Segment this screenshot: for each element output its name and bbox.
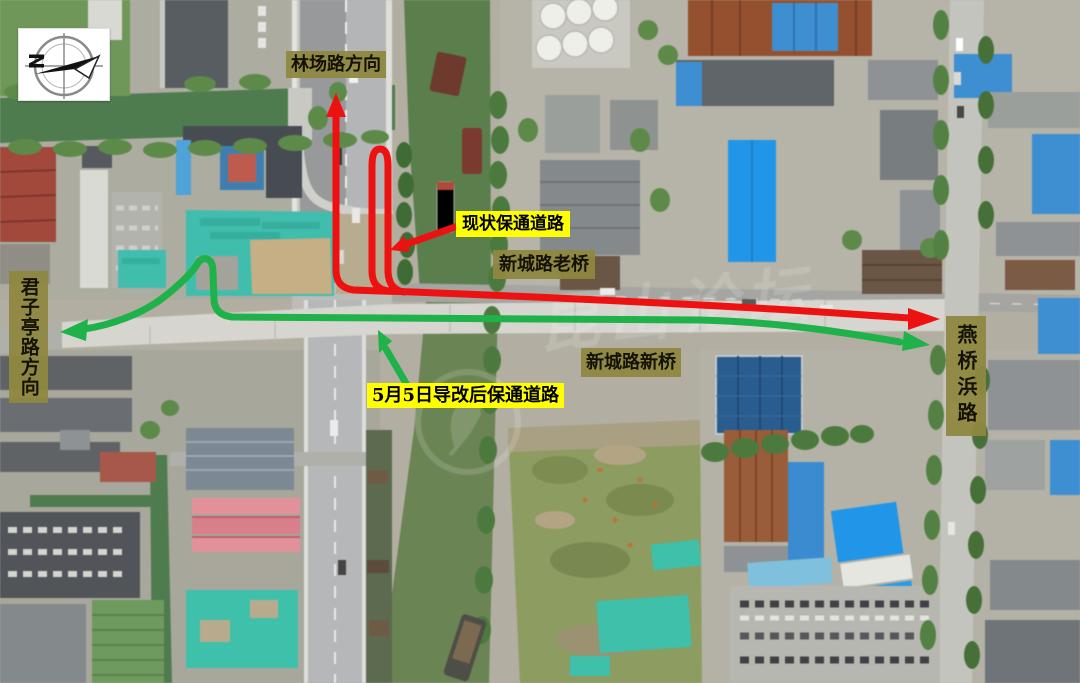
north-compass: N (18, 28, 110, 101)
label-yanqiaobang-road: 燕桥浜路 (946, 316, 986, 436)
label-linchang-road-direction: 林场路方向 (286, 51, 386, 78)
satellite-scene: 昆山论坛 (0, 0, 1080, 683)
label-xincheng-old-bridge: 新城路老桥 (493, 250, 595, 279)
label-junziting-road-direction: 君子亭路方向 (9, 271, 48, 403)
callout-new-detour-road: 5月5日导改后保通道路 (367, 383, 564, 408)
compass-north-letter: N (24, 53, 48, 70)
label-xincheng-new-bridge: 新城路新桥 (581, 348, 681, 377)
callout-current-detour-road: 现状保通道路 (456, 211, 570, 237)
vacant-field (508, 420, 702, 683)
aerial-detour-map: 昆山论坛 林场路方向 现状保通道路 新城路老桥 君子亭路方向 新城路新桥 5月5… (0, 0, 1080, 683)
